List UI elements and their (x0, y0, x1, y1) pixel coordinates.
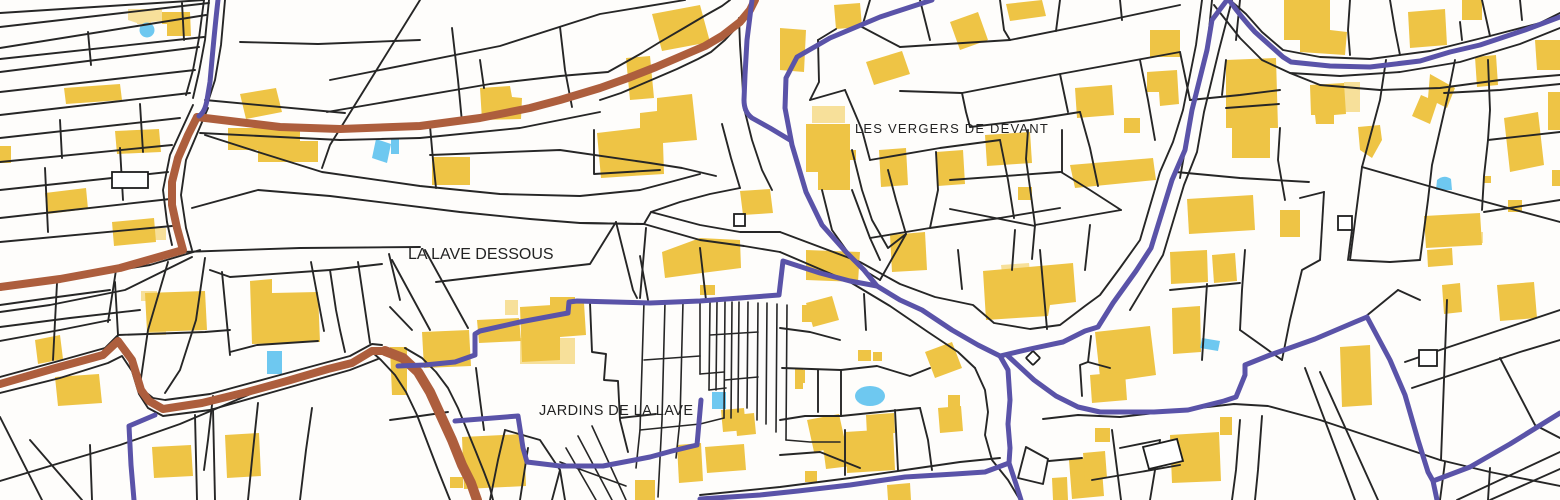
svg-text:JARDINS DE LA LAVE: JARDINS DE LA LAVE (539, 403, 693, 419)
svg-text:LA LAVE DESSOUS: LA LAVE DESSOUS (408, 246, 554, 263)
svg-text:LES VERGERS DE DEVANT: LES VERGERS DE DEVANT (855, 121, 1049, 136)
